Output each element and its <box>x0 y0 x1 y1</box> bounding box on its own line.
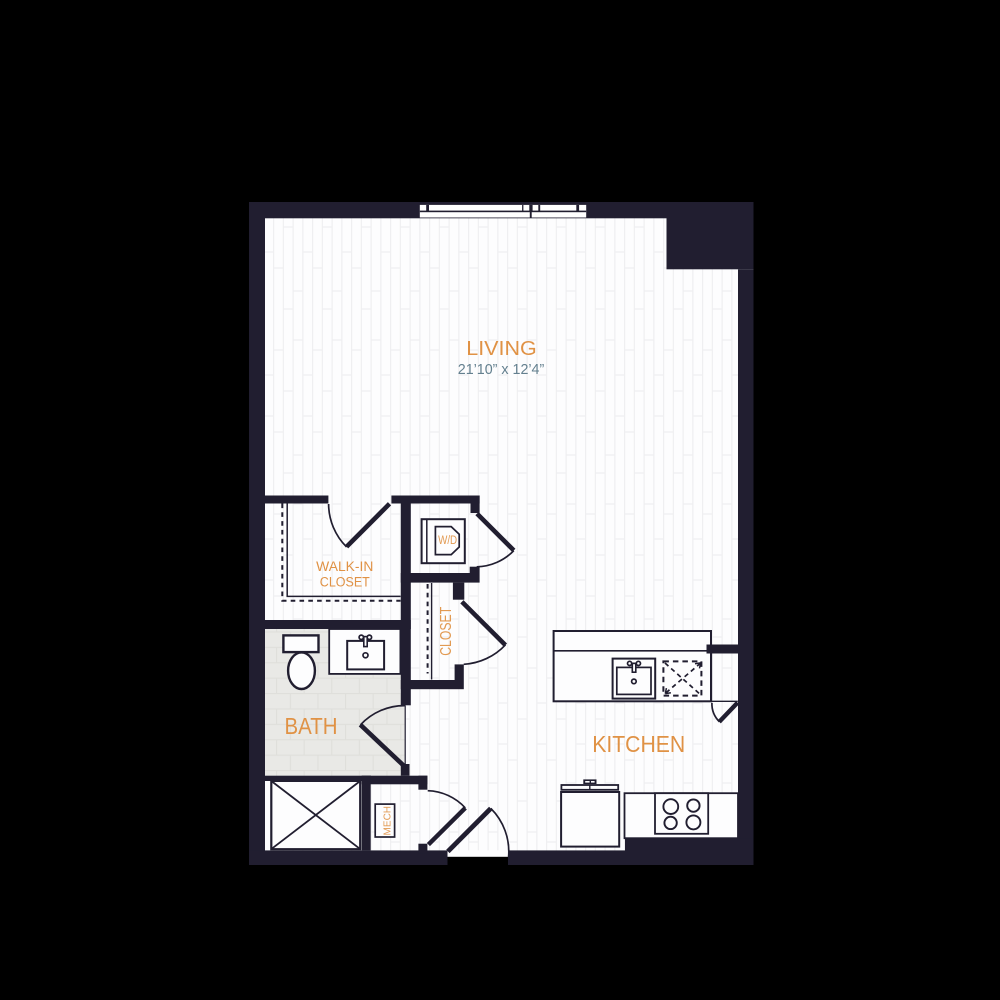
svg-text:BATH: BATH <box>285 713 338 739</box>
svg-text:CLOSET: CLOSET <box>438 606 455 655</box>
svg-text:W/D: W/D <box>438 535 457 547</box>
svg-text:21’10” x 12’4”: 21’10” x 12’4” <box>458 361 545 378</box>
svg-text:KITCHEN: KITCHEN <box>592 731 685 757</box>
svg-text:CLOSET: CLOSET <box>320 575 370 590</box>
svg-text:MECH: MECH <box>381 806 393 836</box>
svg-text:LIVING: LIVING <box>466 337 537 360</box>
svg-text:WALK-IN: WALK-IN <box>316 559 373 574</box>
